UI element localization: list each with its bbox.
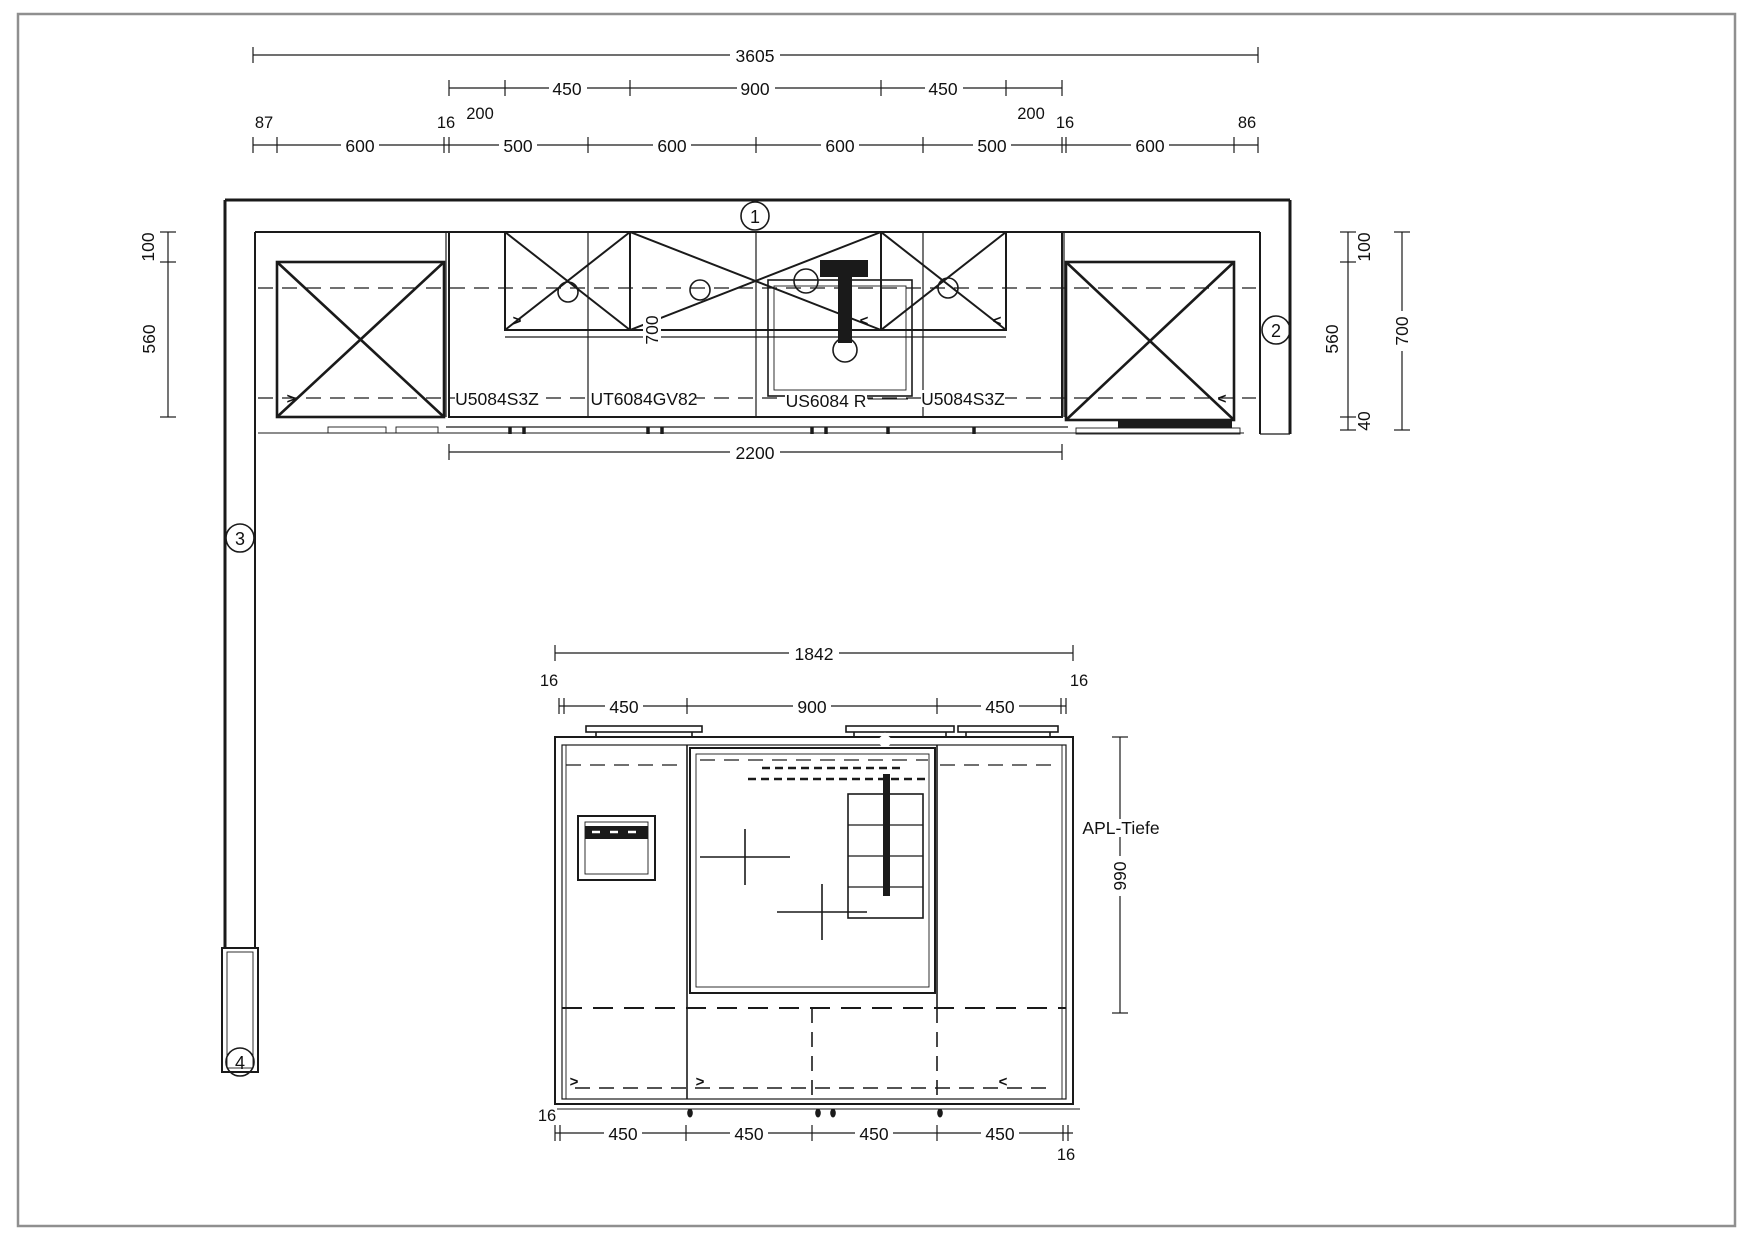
marker-3: 3 [235,529,245,549]
dim-450: 450 [859,1124,888,1144]
dim-right-560: 560 [1322,324,1342,353]
island-dim-top-chain: 450 900 450 [559,697,1066,717]
dim-right-100: 100 [1354,232,1374,261]
dim-16: 16 [1057,1146,1075,1164]
dim-500-1: 500 [503,136,532,156]
door-swing-arrow: < [860,313,869,330]
dim-86: 86 [1238,114,1256,132]
unit-label-4: U5084S3Z [921,389,1005,409]
dim-inner-700: 700 [642,315,662,344]
unit-label-2: UT6084GV82 [590,389,697,409]
dim-450: 450 [609,697,638,717]
kitchen-plan-drawing: 3605 450 900 450 200 200 600 500 [0,0,1753,1240]
dim-600-3: 600 [825,136,854,156]
dim-450: 450 [985,697,1014,717]
door-swing-arrow: < [993,313,1002,330]
plinth-shadow [1118,420,1232,428]
dim-990: 990 [1110,861,1130,890]
dim-450-a: 450 [552,79,581,99]
dim-450-b: 450 [928,79,957,99]
dim-16-left: 16 [437,114,455,132]
inner-depth-dim: 700 [642,310,662,350]
door-swing-arrow: > [513,313,522,330]
dim-87: 87 [255,114,273,132]
unit-label-3: US6084 R [786,391,867,411]
dim-900: 900 [740,79,769,99]
dim-left-560: 560 [139,324,159,353]
dim-left-100: 100 [138,232,158,261]
dim-450: 450 [608,1124,637,1144]
dim-right-700: 700 [1392,316,1412,345]
door-swing-arrow: > [287,391,296,408]
unit-label-1: U5084S3Z [455,389,539,409]
page-border [18,14,1735,1226]
dim-900: 900 [797,697,826,717]
dim-1842: 1842 [795,644,834,664]
door-swing-arrow: < [1218,391,1227,408]
dim-450: 450 [734,1124,763,1144]
drawing-page: 3605 450 900 450 200 200 600 500 [0,0,1753,1240]
marker-1: 1 [750,207,760,227]
dim-16: 16 [1070,672,1088,690]
dim-600-4: 600 [1135,136,1164,156]
marker-4: 4 [235,1053,245,1073]
door-swing-arrow: < [999,1074,1008,1091]
dim-3605: 3605 [736,46,775,66]
door-swing-arrow: > [570,1074,579,1091]
dim-450: 450 [985,1124,1014,1144]
marker-2: 2 [1271,321,1281,341]
dim-600-1: 600 [345,136,374,156]
apl-tiefe-label: APL-Tiefe [1082,818,1159,838]
dim-500-2: 500 [977,136,1006,156]
dim-16: 16 [538,1107,556,1125]
door-swing-arrow: > [696,1074,705,1091]
dim-600-2: 600 [657,136,686,156]
dim-200-left: 200 [466,105,494,123]
dim-2200: 2200 [736,443,775,463]
dim-right-40: 40 [1354,411,1374,431]
dim-16: 16 [540,672,558,690]
dim-200-right: 200 [1017,105,1045,123]
dim-16-right: 16 [1056,114,1074,132]
